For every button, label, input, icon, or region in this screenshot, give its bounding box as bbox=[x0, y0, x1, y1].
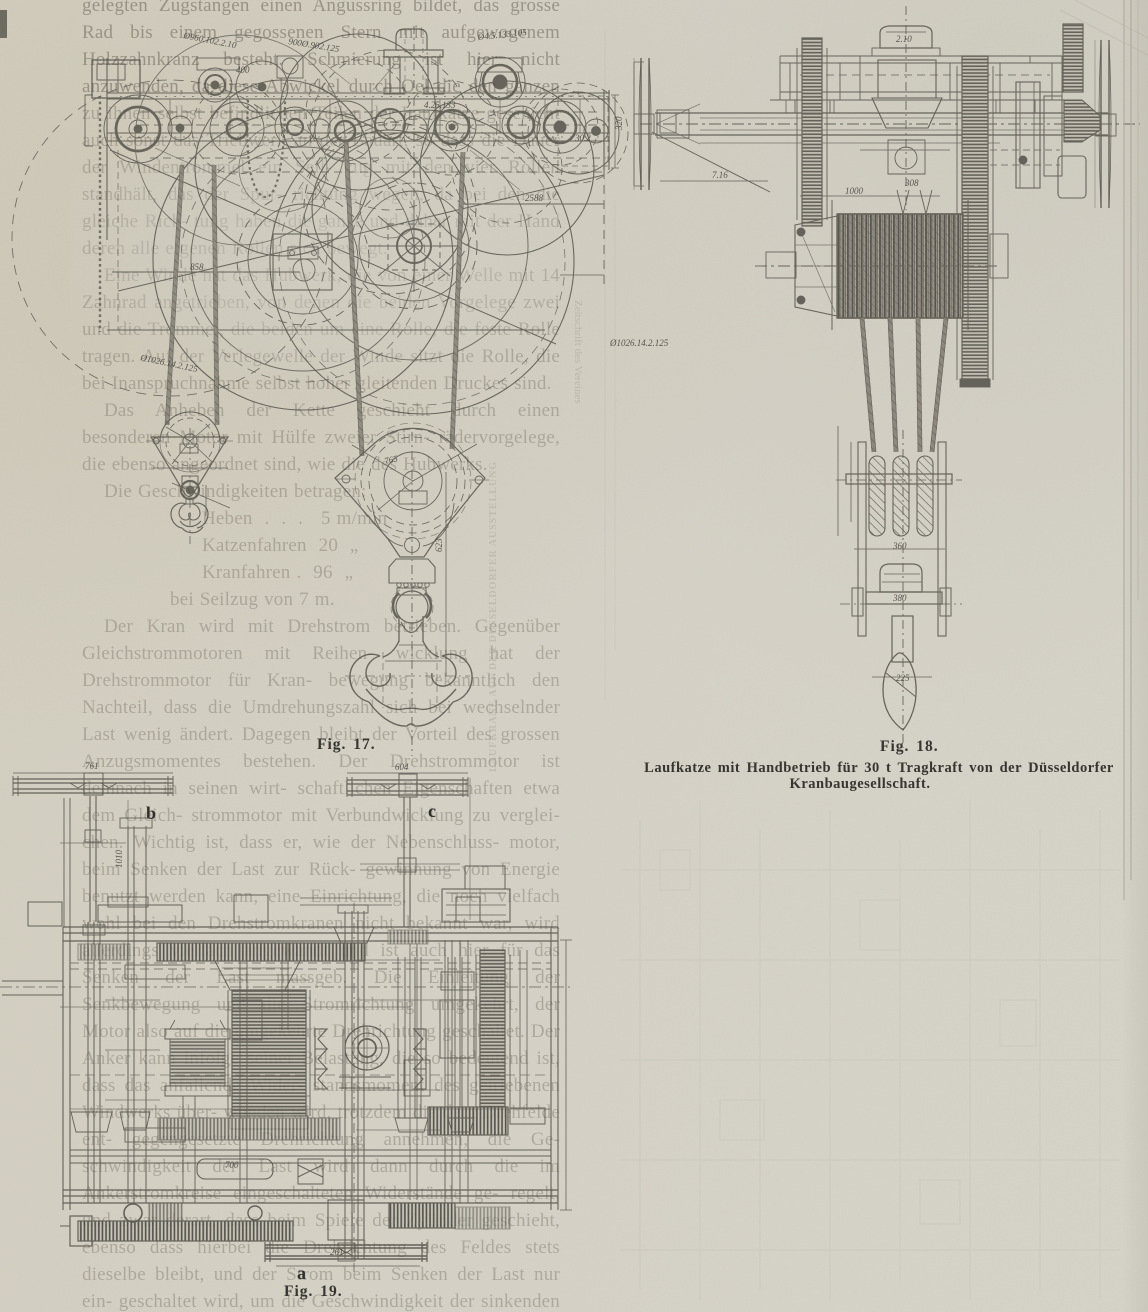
svg-text:858: 858 bbox=[190, 262, 204, 272]
svg-text:320: 320 bbox=[614, 116, 624, 131]
svg-text:4.25.133: 4.25.133 bbox=[424, 100, 456, 110]
svg-text:Ø1026.14.2.125: Ø1026.14.2.125 bbox=[609, 338, 669, 348]
svg-text:LAUFKRANE AUF DER DÜSSELDORFER: LAUFKRANE AUF DER DÜSSELDORFER AUSSTELLU… bbox=[486, 461, 499, 772]
svg-text:360: 360 bbox=[892, 541, 907, 551]
svg-text:761: 761 bbox=[85, 761, 99, 771]
svg-text:2.10: 2.10 bbox=[896, 34, 912, 44]
svg-text:Zeitschrift des Vereines: Zeitschrift des Vereines bbox=[572, 300, 584, 404]
svg-text:400: 400 bbox=[236, 65, 250, 75]
svg-text:1010: 1010 bbox=[114, 850, 124, 869]
svg-text:225: 225 bbox=[896, 673, 910, 683]
svg-text:261: 261 bbox=[330, 1247, 344, 1257]
svg-text:1000: 1000 bbox=[845, 186, 864, 196]
svg-text:30.2: 30.2 bbox=[574, 133, 591, 143]
svg-text:308: 308 bbox=[904, 178, 919, 188]
svg-text:700: 700 bbox=[225, 1160, 239, 1170]
svg-text:2588: 2588 bbox=[525, 193, 544, 203]
svg-text:7.16: 7.16 bbox=[712, 170, 728, 180]
svg-text:604: 604 bbox=[395, 762, 409, 772]
svg-text:623: 623 bbox=[434, 538, 444, 552]
svg-text:380: 380 bbox=[892, 593, 907, 603]
